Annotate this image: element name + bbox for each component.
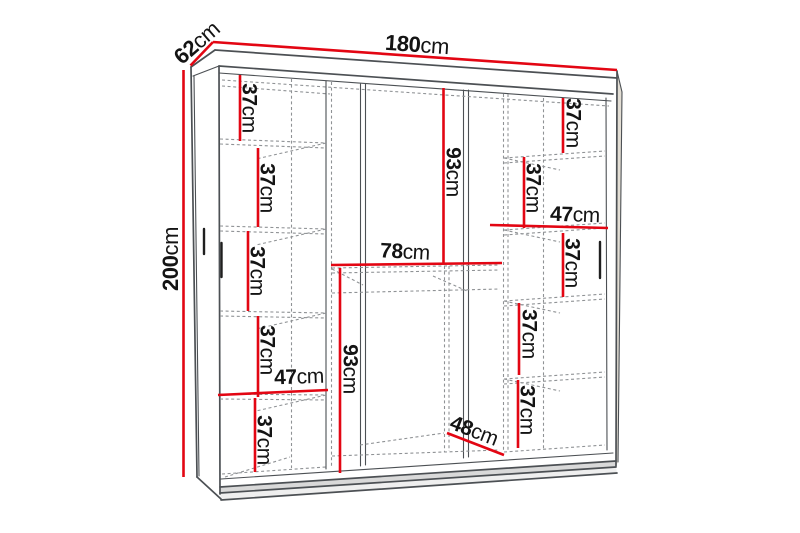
- unit: cm: [238, 106, 261, 133]
- value: 37: [253, 415, 276, 438]
- shelf-spacing-label-left-3: 37cm: [247, 246, 268, 296]
- shelf-spacing-label-left-2: 37cm: [257, 163, 278, 213]
- value: 93: [442, 147, 465, 170]
- value: 47: [274, 366, 297, 390]
- right-section-width-label: 47cm: [550, 204, 600, 227]
- value: 37: [518, 309, 541, 332]
- value: 37: [256, 163, 279, 186]
- value: 37: [238, 83, 261, 106]
- value: 78: [380, 239, 404, 263]
- unit: cm: [572, 203, 600, 227]
- unit: cm: [516, 408, 539, 435]
- shelf-spacing-label-right-3: 37cm: [562, 238, 583, 288]
- hanging-height-top-label: 93cm: [443, 147, 464, 197]
- height-value: 200: [158, 256, 183, 292]
- shelf-spacing-label-left-1: 37cm: [239, 83, 260, 133]
- width-unit: cm: [420, 32, 450, 59]
- wardrobe-dimension-diagram: 180cm 62cm 200cm 37cm 37cm 37cm 37cm 47c…: [0, 0, 800, 533]
- value: 93: [339, 344, 362, 367]
- lower-height-label: 93cm: [340, 344, 361, 394]
- left-section-width-label: 47cm: [274, 366, 324, 389]
- value: 47: [550, 203, 573, 227]
- value: 37: [516, 385, 539, 408]
- shelf-spacing-label-right-2: 37cm: [523, 163, 544, 213]
- unit: cm: [339, 367, 362, 394]
- value: 37: [522, 163, 545, 186]
- height-dimension-label: 200cm: [160, 227, 182, 291]
- width-value: 180: [384, 30, 421, 57]
- unit: cm: [518, 332, 541, 359]
- shelf-spacing-label-right-4: 37cm: [519, 309, 540, 359]
- door-panel-edges: [326, 81, 469, 469]
- interior-hidden-lines: [220, 79, 609, 477]
- value: 37: [256, 325, 279, 348]
- wardrobe-line-drawing: [0, 0, 800, 533]
- shelf-spacing-label-right-5: 37cm: [517, 385, 538, 435]
- width-dimension-label: 180cm: [384, 32, 449, 58]
- unit: cm: [246, 269, 269, 296]
- unit: cm: [402, 240, 430, 264]
- unit: cm: [253, 438, 276, 465]
- shelf-spacing-label-right-1: 37cm: [563, 98, 584, 148]
- value: 37: [562, 98, 585, 121]
- unit: cm: [562, 121, 585, 148]
- unit: cm: [561, 261, 584, 288]
- middle-width-label: 78cm: [380, 240, 431, 264]
- shelf-spacing-label-left-5: 37cm: [254, 415, 275, 465]
- unit: cm: [296, 365, 324, 389]
- value: 37: [246, 246, 269, 269]
- unit: cm: [522, 186, 545, 213]
- unit: cm: [442, 170, 465, 197]
- unit: cm: [256, 186, 279, 213]
- height-unit: cm: [158, 227, 183, 256]
- value: 37: [561, 238, 584, 261]
